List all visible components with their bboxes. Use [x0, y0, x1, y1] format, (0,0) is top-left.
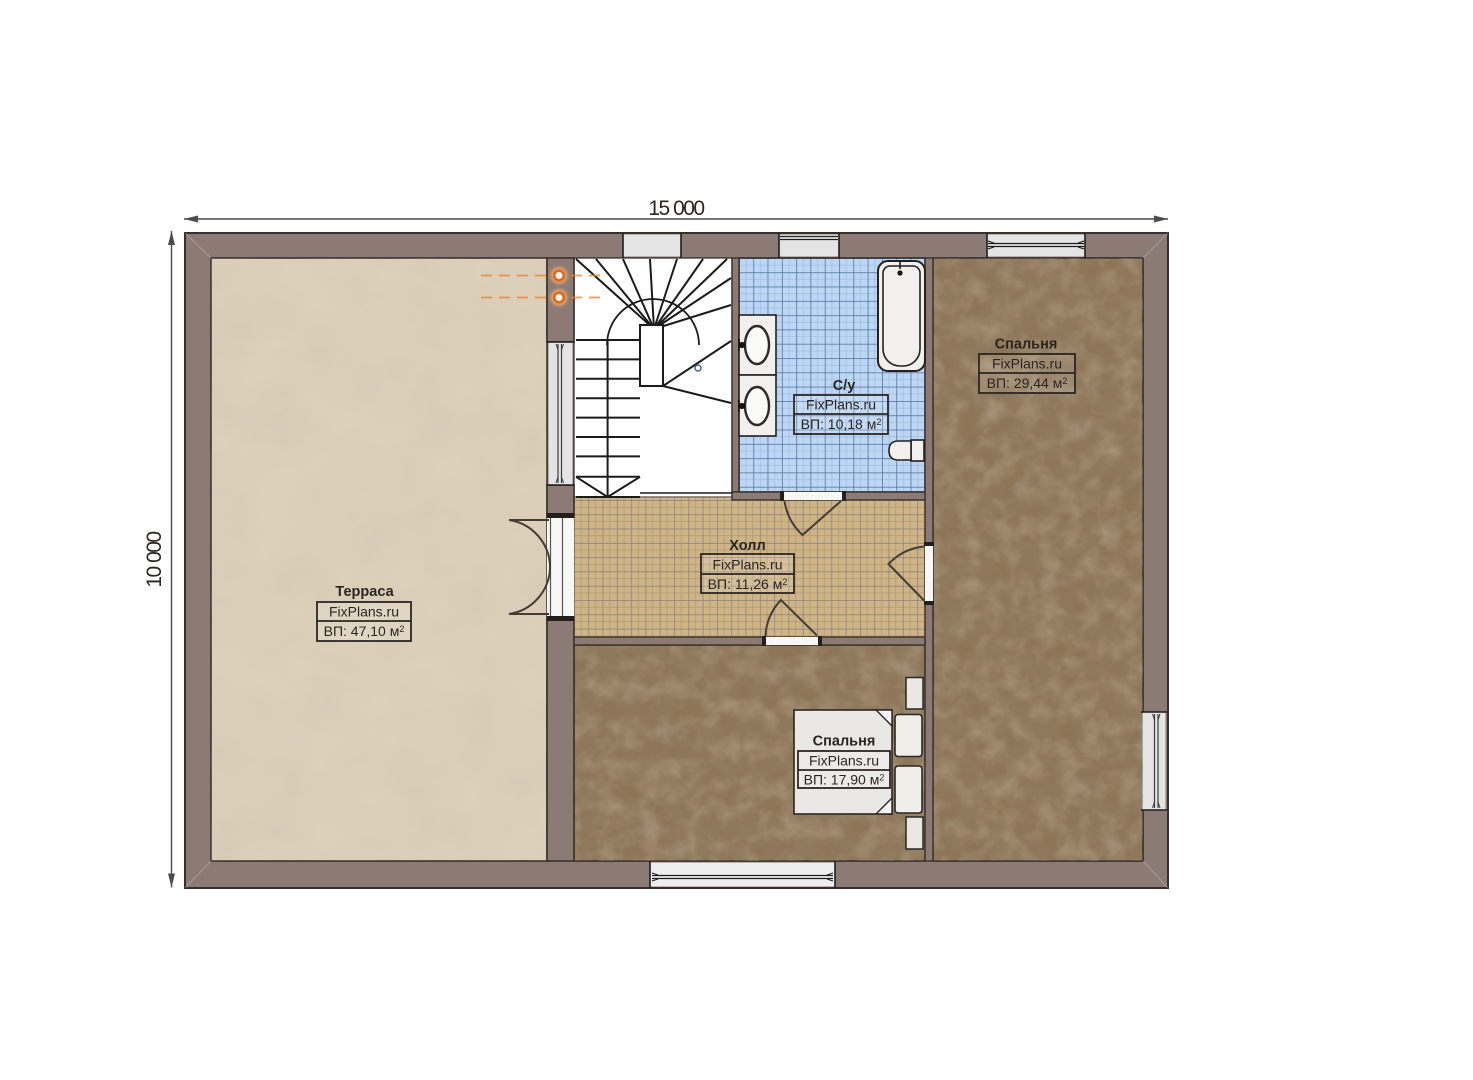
svg-text:Терраса: Терраса [335, 584, 394, 600]
svg-text:С/у: С/у [833, 378, 856, 394]
svg-text:FixPlans.ru: FixPlans.ru [712, 557, 782, 573]
svg-text:FixPlans.ru: FixPlans.ru [806, 397, 876, 413]
svg-text:FixPlans.ru: FixPlans.ru [809, 753, 879, 769]
svg-text:Холл: Холл [729, 538, 765, 554]
svg-text:ВП: 10,18 м2: ВП: 10,18 м2 [801, 416, 882, 432]
svg-text:ВП: 29,44 м2: ВП: 29,44 м2 [987, 375, 1068, 391]
svg-text:ВП: 11,26 м2: ВП: 11,26 м2 [708, 576, 788, 592]
svg-text:FixPlans.ru: FixPlans.ru [992, 356, 1062, 372]
svg-text:Спальня: Спальня [813, 734, 876, 750]
svg-text:ВП: 47,10 м2: ВП: 47,10 м2 [324, 623, 405, 639]
svg-text:FixPlans.ru: FixPlans.ru [329, 604, 399, 620]
svg-text:Спальня: Спальня [995, 337, 1058, 353]
svg-text:10 000: 10 000 [143, 532, 166, 588]
svg-text:ВП: 17,90 м2: ВП: 17,90 м2 [804, 772, 885, 788]
svg-text:15 000: 15 000 [648, 197, 704, 220]
